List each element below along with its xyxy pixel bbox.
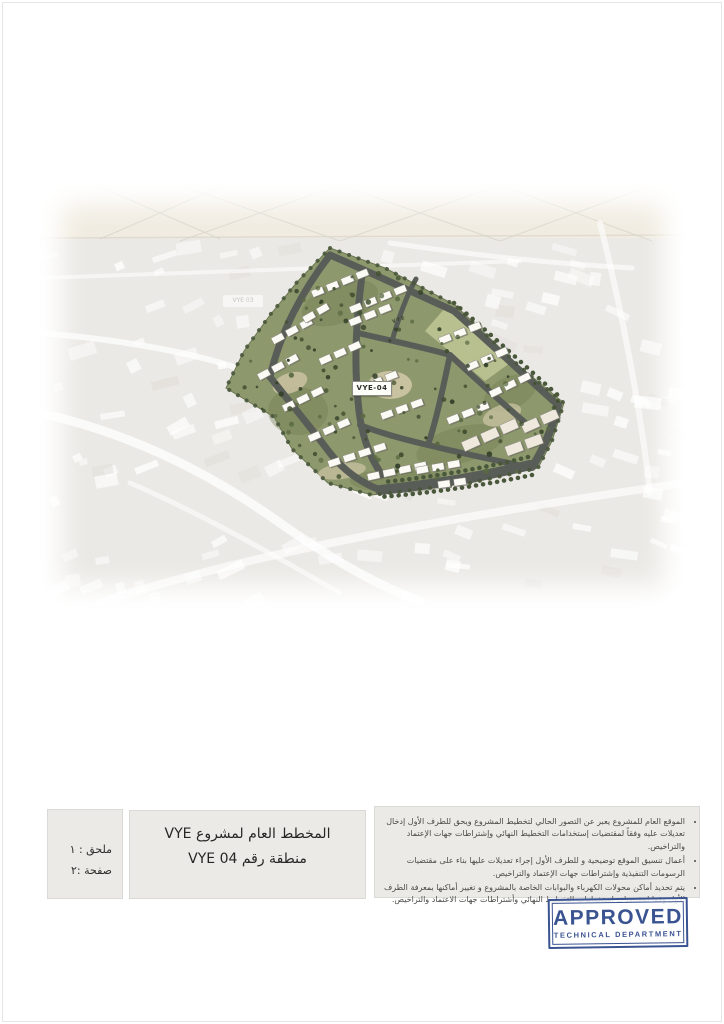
document-page: VYE 03 VYE VYE-04 ملحق : ١ صفحة :٢ المخط… (0, 0, 724, 1024)
page-number: صفحة :٢ (48, 861, 112, 882)
technical-department-text: TECHNICAL DEPARTMENT (554, 929, 683, 940)
note-item: الموقع العام للمشروع يعبر عن التصور الحا… (383, 816, 685, 853)
approval-stamp-inner: APPROVED TECHNICAL DEPARTMENT (552, 901, 685, 945)
approval-stamp: APPROVED TECHNICAL DEPARTMENT (548, 897, 689, 949)
annex-page-box: ملحق : ١ صفحة :٢ (47, 809, 123, 899)
plan-title-line2: منطقة رقم VYE 04 (130, 847, 365, 872)
notes-box: الموقع العام للمشروع يعبر عن التصور الحا… (374, 806, 700, 898)
faded-area-label: VYE 03 (223, 295, 263, 307)
site-code-label: VYE-04 (352, 381, 392, 396)
master-plan-map: VYE 03 VYE VYE-04 (40, 183, 685, 608)
approved-text: APPROVED (553, 906, 683, 929)
plan-title-box: المخطط العام لمشروع VYE منطقة رقم VYE 04 (129, 810, 366, 899)
notes-list: الموقع العام للمشروع يعبر عن التصور الحا… (383, 816, 685, 907)
plan-title-line1: المخطط العام لمشروع VYE (130, 822, 365, 847)
note-item: أعمال تنسيق الموقع توضيحية و للطرف الأول… (383, 855, 685, 880)
annex-number: ملحق : ١ (48, 840, 112, 861)
